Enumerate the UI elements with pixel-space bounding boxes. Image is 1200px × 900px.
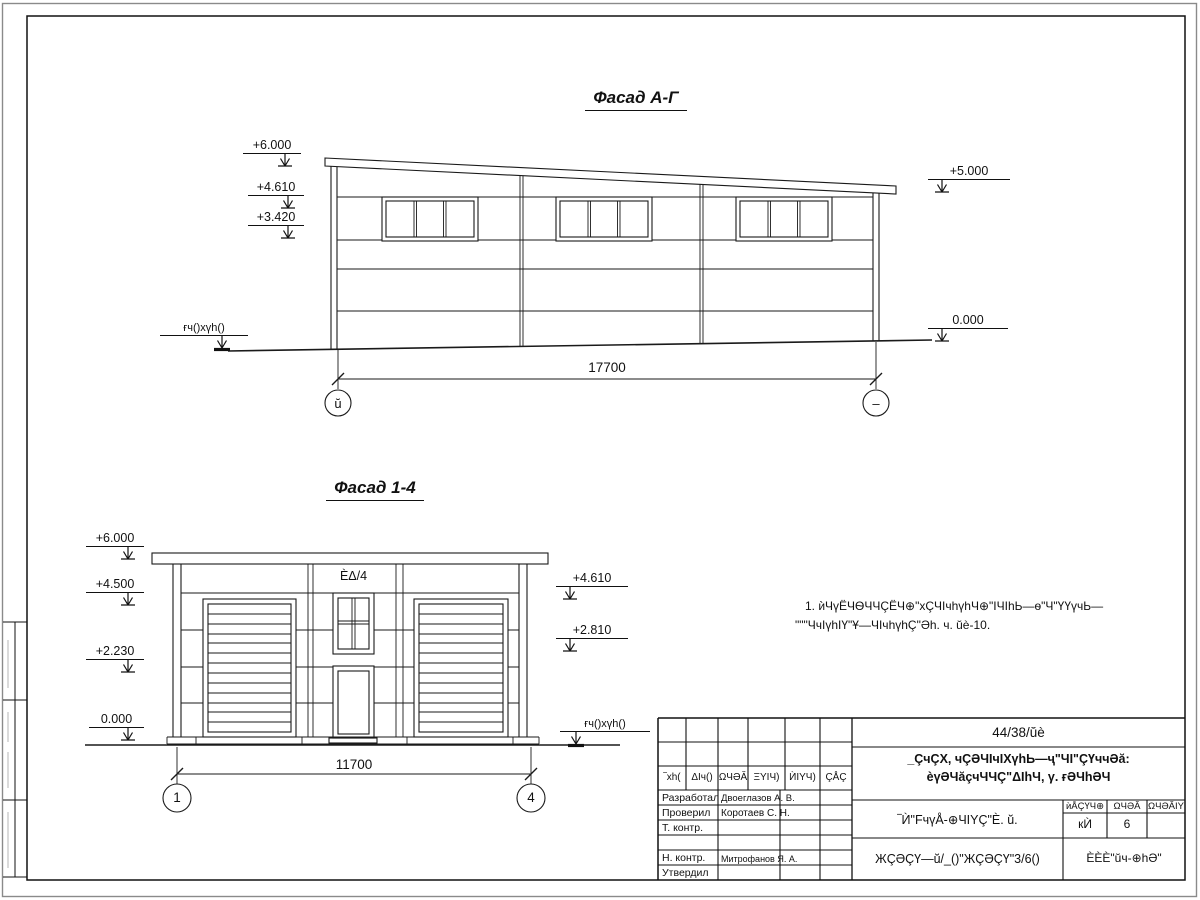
side-stamp [3, 622, 27, 877]
col-sheet-header: ΩЧƏĂ [1107, 801, 1147, 812]
titleblock-col-izm: ‾хh( [658, 772, 686, 783]
elevation-value: +2.230 [86, 644, 144, 660]
elevation-mark-5000-ag: +5.000 [928, 164, 1010, 197]
elevation-mark-4610-ag: +4.610 [248, 180, 304, 213]
elevation-value: 0.000 [928, 313, 1008, 329]
general-note: 1. ѝЧүЁЧѲЧЧÇЁЧ⊕"хÇЧΙчhүhЧ⊕"ΙЧΙhЬ—ѳ"Ч"ҮҮү… [795, 597, 1105, 635]
titleblock-col-podp: ЍΙΥЧ) [785, 772, 820, 783]
dimension-11700: 11700 [304, 757, 404, 772]
elevation-arrow-icon [118, 593, 138, 610]
ground-level-label: ғч()хүh() [160, 322, 248, 336]
window-tag: ÈΔ/4 [331, 569, 376, 583]
axis-bubble-4-label: 4 [517, 790, 545, 805]
ground-arrow-icon [566, 732, 586, 749]
elevation-mark-4500-14: +4.500 [86, 577, 144, 610]
elevation-value: +4.610 [556, 571, 628, 587]
facade-14-title: Фасад 1-4 [300, 478, 450, 501]
ground-level-label: ғч()хүh() [560, 718, 650, 732]
elevation-arrow-icon [560, 587, 580, 604]
elevation-mark-0000-14: 0.000 [89, 712, 144, 745]
elevation-arrow-icon [278, 226, 298, 243]
project-name-line1: _ÇчÇХ, чÇƏЧΙчΙХүhЬ—ҷ"ЧΙ"ÇҮччƏă: [852, 752, 1185, 766]
facade-ag-linework [228, 158, 932, 416]
stage-note: ЖÇƏÇҮ—ŭ/_()"ЖÇƏÇҮ"3/6() [852, 852, 1063, 866]
elevation-mark-0000-ag: 0.000 [928, 313, 1008, 346]
elevation-arrow-icon [932, 180, 952, 197]
facade-ag-title: Фасад А-Г [556, 88, 716, 111]
project-name-line2: èүƏЧăçчЧЧÇ"ΔΙhЧ, γ. ғƏЧhƏЧ [852, 770, 1185, 784]
drawing-sheet: Фасад А-Г +6.000 +4.610 +3.420 +5.000 0.… [0, 0, 1200, 900]
sig-role-developer: Разработал [662, 792, 719, 804]
sig-name-checker: Коротаев С. Н. [721, 808, 790, 819]
elevation-mark-3420-ag: +3.420 [248, 210, 304, 243]
sig-role-checker: Проверил [662, 807, 710, 819]
elevation-arrow-icon [932, 329, 952, 346]
note-line-2: """ЧчΙүhΙҮ"Ұ—ЧΙчhүhÇ"Әh. ч. ŭè-10. [795, 616, 1105, 635]
elevation-mark-2230-14: +2.230 [86, 644, 144, 677]
elevation-value: +6.000 [243, 138, 301, 154]
titleblock-col-list: ΩЧƏĂ [718, 772, 748, 783]
ground-arrow-icon [212, 336, 232, 353]
elevation-arrow-icon [275, 154, 295, 171]
elevation-value: +4.500 [86, 577, 144, 593]
elevation-value: 0.000 [89, 712, 144, 728]
elevation-value: +6.000 [86, 531, 144, 547]
elevation-value: +2.810 [556, 623, 628, 639]
sheet-name: ‾Ѝ"FчүÅ-⊕ЧΙΥÇ"È. ŭ. [852, 812, 1063, 827]
sig-name-developer: Двоеглазов А. В. [721, 793, 795, 804]
elevation-mark-6000-ag: +6.000 [243, 138, 301, 171]
col-sheets-header: ΩЧƏĂΙΥ [1147, 801, 1185, 812]
elevation-value: +5.000 [928, 164, 1010, 180]
elevation-arrow-icon [560, 639, 580, 656]
sig-role-ncontrol: Н. контр. [662, 852, 705, 864]
sig-role-tcontrol: Т. контр. [662, 822, 703, 834]
facade-ag-title-text: Фасад А-Г [585, 88, 686, 111]
titleblock-col-data: ÇÅÇ [820, 772, 852, 783]
note-line-1: 1. ѝЧүЁЧѲЧЧÇЁЧ⊕"хÇЧΙчhүhЧ⊕"ΙЧΙhЬ—ѳ"Ч"ҮҮү… [805, 597, 1105, 616]
elevation-mark-4610-14: +4.610 [556, 571, 628, 604]
sheet-number-value: 6 [1107, 817, 1147, 831]
sig-role-approver: Утвердил [662, 867, 709, 879]
elevation-arrow-icon [118, 660, 138, 677]
axis-bubble-a-label: ŭ [324, 396, 352, 411]
company-name: ÈÈÈ"ŭч-⊕hƏ" [1063, 851, 1185, 865]
axis-bubble-1-label: 1 [163, 790, 191, 805]
inner-frame [27, 16, 1185, 880]
ground-level-mark-14: ғч()хүh() [560, 718, 650, 749]
sig-name-ncontrol: Митрофанов Я. А. [721, 854, 797, 864]
doc-number: 44/38/ŭè [852, 725, 1185, 740]
titleblock-col-ndok: ΞΥΙЧ) [748, 772, 785, 783]
facade-14-title-text: Фасад 1-4 [326, 478, 423, 501]
dimension-17700: 17700 [557, 360, 657, 375]
col-stage-header: ѝÅÇҮЧ⊕ [1063, 801, 1107, 812]
elevation-value: +4.610 [248, 180, 304, 196]
elevation-value: +3.420 [248, 210, 304, 226]
elevation-mark-2810-14: +2.810 [556, 623, 628, 656]
elevation-arrow-icon [118, 547, 138, 564]
titleblock-col-koluch: ΔΙч() [686, 772, 718, 783]
axis-bubble-g-label: – [862, 396, 890, 411]
ground-level-mark-ag: ғч()хүh() [160, 322, 248, 353]
elevation-mark-6000-14: +6.000 [86, 531, 144, 564]
facade-14-linework [85, 553, 620, 812]
elevation-arrow-icon [118, 728, 138, 745]
stage-value: кЍ [1063, 817, 1107, 831]
